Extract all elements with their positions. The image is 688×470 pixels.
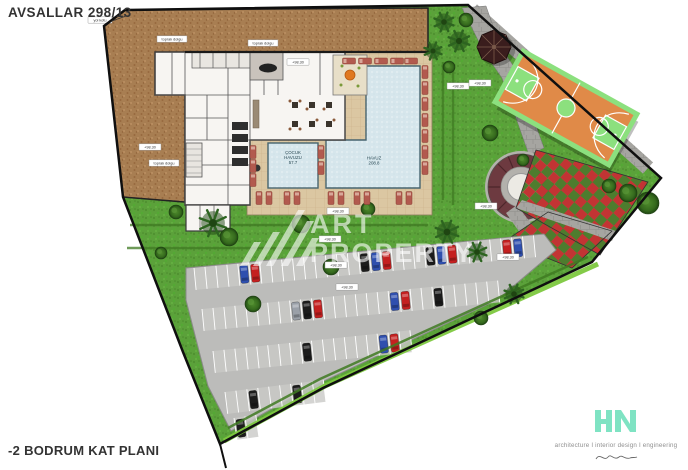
page-title: AVSALLAR 298/13: [8, 5, 132, 20]
watermark-word2: PROPERTY: [310, 238, 475, 268]
sun-lounger: [328, 192, 334, 205]
sun-lounger: [266, 192, 272, 205]
elevation-label: +98.30: [139, 144, 161, 150]
tree-bush: [245, 296, 261, 312]
parked-car-blue: [390, 292, 400, 311]
parked-car-red: [313, 300, 323, 319]
site-plan-drawing: yol kotutoprak dolgutoprak dolgu+98.30+9…: [0, 0, 688, 470]
svg-text:+98.30: +98.30: [474, 82, 486, 86]
tree-bush: [443, 61, 455, 73]
svg-text:toprak dolgu: toprak dolgu: [253, 42, 274, 46]
sun-lounger: [422, 98, 428, 111]
reception-desk: [259, 64, 277, 73]
sun-lounger: [422, 162, 428, 175]
sun-lounger: [250, 146, 256, 159]
sun-lounger: [375, 58, 388, 64]
sun-lounger: [343, 58, 356, 64]
svg-text:toprak dolgu: toprak dolgu: [162, 38, 183, 42]
boundary-post: [220, 444, 226, 468]
plan-sheet: yol kotutoprak dolgutoprak dolgu+98.30+9…: [0, 0, 688, 470]
watermark-word1: ART: [310, 209, 375, 239]
svg-text:+98.30: +98.30: [144, 146, 156, 150]
plan-caption: -2 BODRUM KAT PLANI: [8, 443, 159, 458]
parked-car-black: [302, 343, 312, 362]
tree-bush: [220, 228, 238, 246]
sun-lounger: [422, 130, 428, 143]
elevation-label: toprak dolgu: [149, 160, 179, 166]
tree-bush: [482, 125, 498, 141]
elevation-label: toprak dolgu: [157, 36, 187, 42]
elevation-label: +98.30: [287, 59, 309, 65]
sun-lounger: [354, 192, 360, 205]
tree-bush: [459, 13, 473, 27]
svg-text:+98.30: +98.30: [292, 61, 304, 65]
sun-lounger: [294, 192, 300, 205]
parked-car-black: [434, 288, 444, 307]
elevation-label: +98.30: [336, 284, 358, 290]
sun-lounger: [422, 114, 428, 127]
sun-lounger: [422, 146, 428, 159]
brand-block: architecture I interior design I enginee…: [552, 406, 680, 464]
parked-car-silver: [291, 302, 301, 321]
elevation-label: +98.30: [469, 80, 491, 86]
elevation-label: toprak dolgu: [248, 40, 278, 46]
elevation-label: +98.30: [447, 83, 469, 89]
storage-cells: [192, 52, 250, 68]
elevation-label: +98.30: [475, 203, 497, 209]
sun-lounger: [284, 192, 290, 205]
tree-bush: [155, 247, 167, 259]
tree-bush: [619, 184, 637, 202]
sun-lounger: [250, 174, 256, 187]
sun-lounger: [250, 160, 256, 173]
svg-text:toprak dolgu: toprak dolgu: [154, 162, 175, 166]
parked-car-black: [302, 301, 312, 320]
sun-lounger: [391, 58, 404, 64]
svg-text:+98.30: +98.30: [452, 85, 464, 89]
sun-lounger: [422, 82, 428, 95]
sun-lounger: [359, 58, 372, 64]
signature-icon: [594, 450, 638, 464]
sun-lounger: [422, 66, 428, 79]
svg-text:+98.30: +98.30: [480, 205, 492, 209]
brand-tagline: architecture I interior design I enginee…: [552, 442, 680, 449]
tree-bush: [517, 154, 529, 166]
elevation-label: +98.30: [497, 254, 519, 260]
sun-lounger: [364, 192, 370, 205]
sun-lounger: [256, 192, 262, 205]
tree-bush: [602, 179, 616, 193]
parked-car-blue: [239, 265, 249, 284]
svg-text:+98.30: +98.30: [502, 256, 514, 260]
parked-car-red: [250, 264, 260, 283]
svg-text:+98.30: +98.30: [341, 286, 353, 290]
sun-lounger: [405, 58, 418, 64]
sun-lounger: [396, 192, 402, 205]
sun-lounger: [338, 192, 344, 205]
tree-bush: [169, 205, 183, 219]
brand-logo-icon: [590, 406, 642, 436]
stairs: [186, 143, 202, 177]
pool-label: HAVUZ208.8: [367, 155, 382, 165]
sun-lounger: [406, 192, 412, 205]
parked-car-red: [401, 291, 411, 310]
sun-lounger: [318, 162, 324, 175]
sun-lounger: [318, 146, 324, 159]
